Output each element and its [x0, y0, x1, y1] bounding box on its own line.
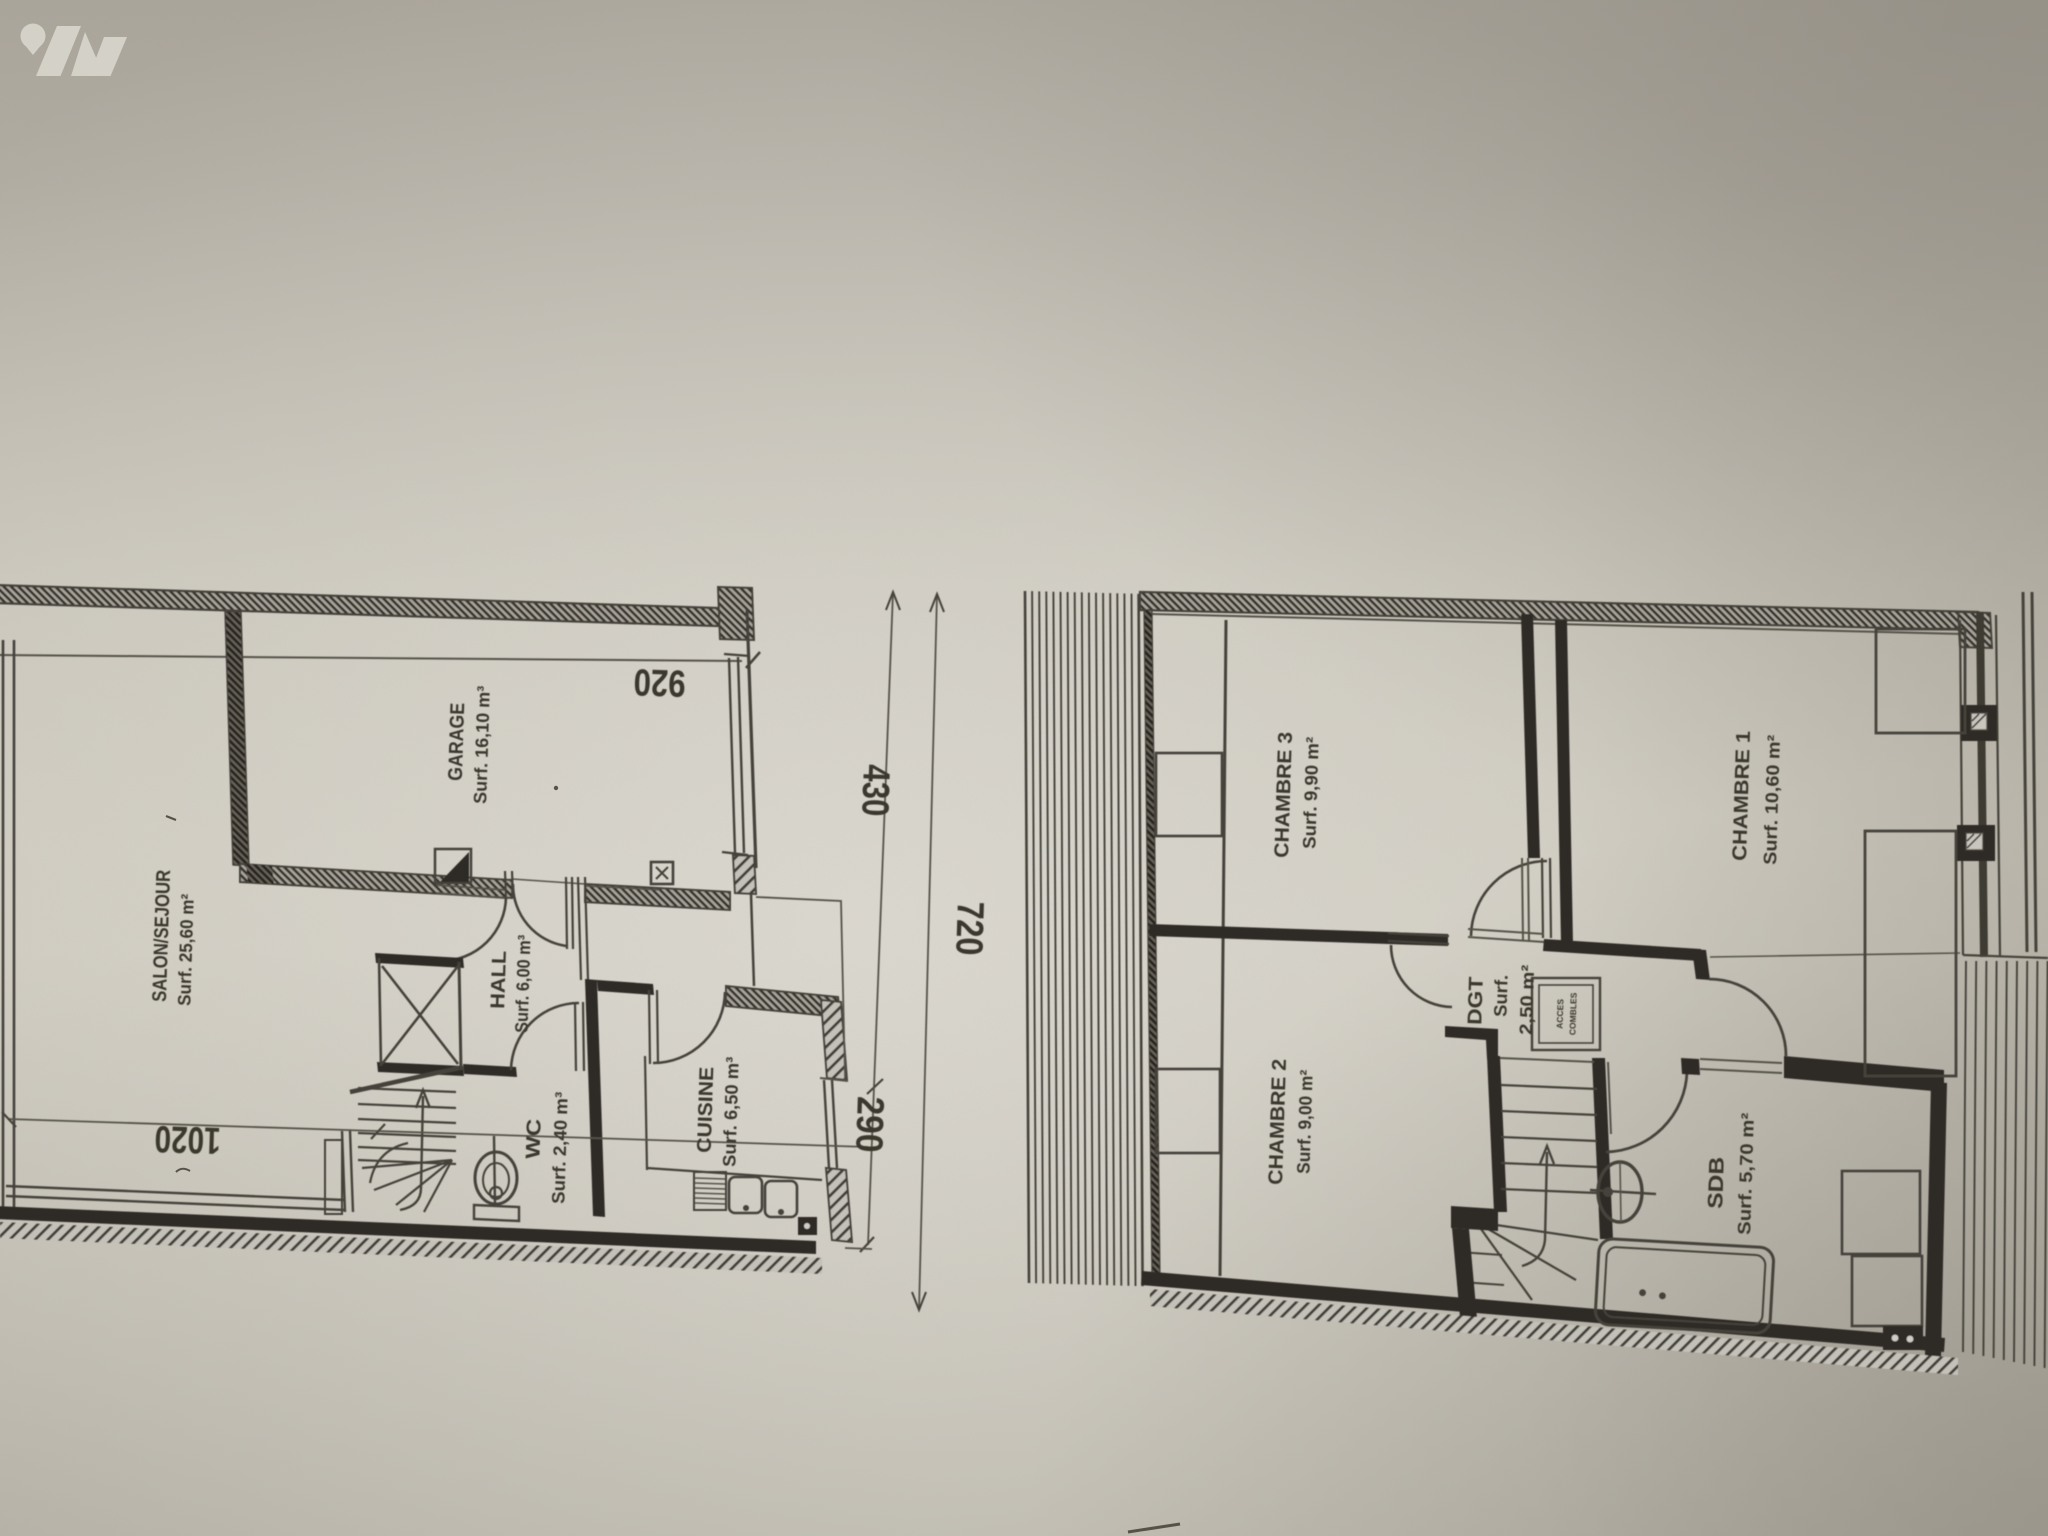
svg-text:Surf. 6,50 m³: Surf. 6,50 m³ — [719, 1057, 742, 1168]
svg-text:Surf. 16,10 m³: Surf. 16,10 m³ — [470, 686, 494, 805]
svg-text:COMBLES: COMBLES — [1567, 992, 1578, 1035]
svg-text:CUISINE: CUISINE — [694, 1066, 719, 1153]
svg-text:290: 290 — [847, 1096, 891, 1153]
svg-text:1020: 1020 — [154, 1117, 221, 1161]
svg-text:920: 920 — [633, 660, 686, 704]
svg-text:CHAMBRE 2: CHAMBRE 2 — [1265, 1058, 1291, 1185]
svg-text:Surf. 25,60 m²: Surf. 25,60 m² — [174, 894, 198, 1007]
svg-text:CHAMBRE 1: CHAMBRE 1 — [1729, 730, 1755, 861]
svg-text:HALL: HALL — [487, 950, 511, 1009]
svg-text:Surf. 9,90 m²: Surf. 9,90 m² — [1299, 737, 1323, 850]
svg-text:GARAGE: GARAGE — [445, 702, 469, 781]
svg-text:ACCES: ACCES — [1555, 999, 1566, 1029]
svg-text:Surf. 10,60 m²: Surf. 10,60 m² — [1760, 735, 1784, 866]
svg-text:SDB: SDB — [1704, 1156, 1729, 1209]
svg-text:Surf. 9,00 m²: Surf. 9,00 m² — [1293, 1070, 1316, 1175]
svg-text:Surf. 5,70 m²: Surf. 5,70 m² — [1734, 1113, 1758, 1236]
svg-text:Surf. 2,40 m³: Surf. 2,40 m³ — [548, 1092, 572, 1205]
svg-text:2,50 m²: 2,50 m² — [1516, 965, 1538, 1036]
svg-text:Surf.: Surf. — [1490, 975, 1511, 1018]
svg-text:430: 430 — [853, 764, 897, 817]
svg-text:720: 720 — [947, 901, 991, 956]
svg-text:DGT: DGT — [1464, 976, 1487, 1025]
svg-text:WC: WC — [522, 1118, 545, 1159]
svg-text:CHAMBRE 3: CHAMBRE 3 — [1271, 731, 1297, 858]
svg-text:SALON/SEJOUR: SALON/SEJOUR — [149, 869, 175, 1002]
svg-text:Surf. 6,00 m³: Surf. 6,00 m³ — [511, 935, 534, 1034]
